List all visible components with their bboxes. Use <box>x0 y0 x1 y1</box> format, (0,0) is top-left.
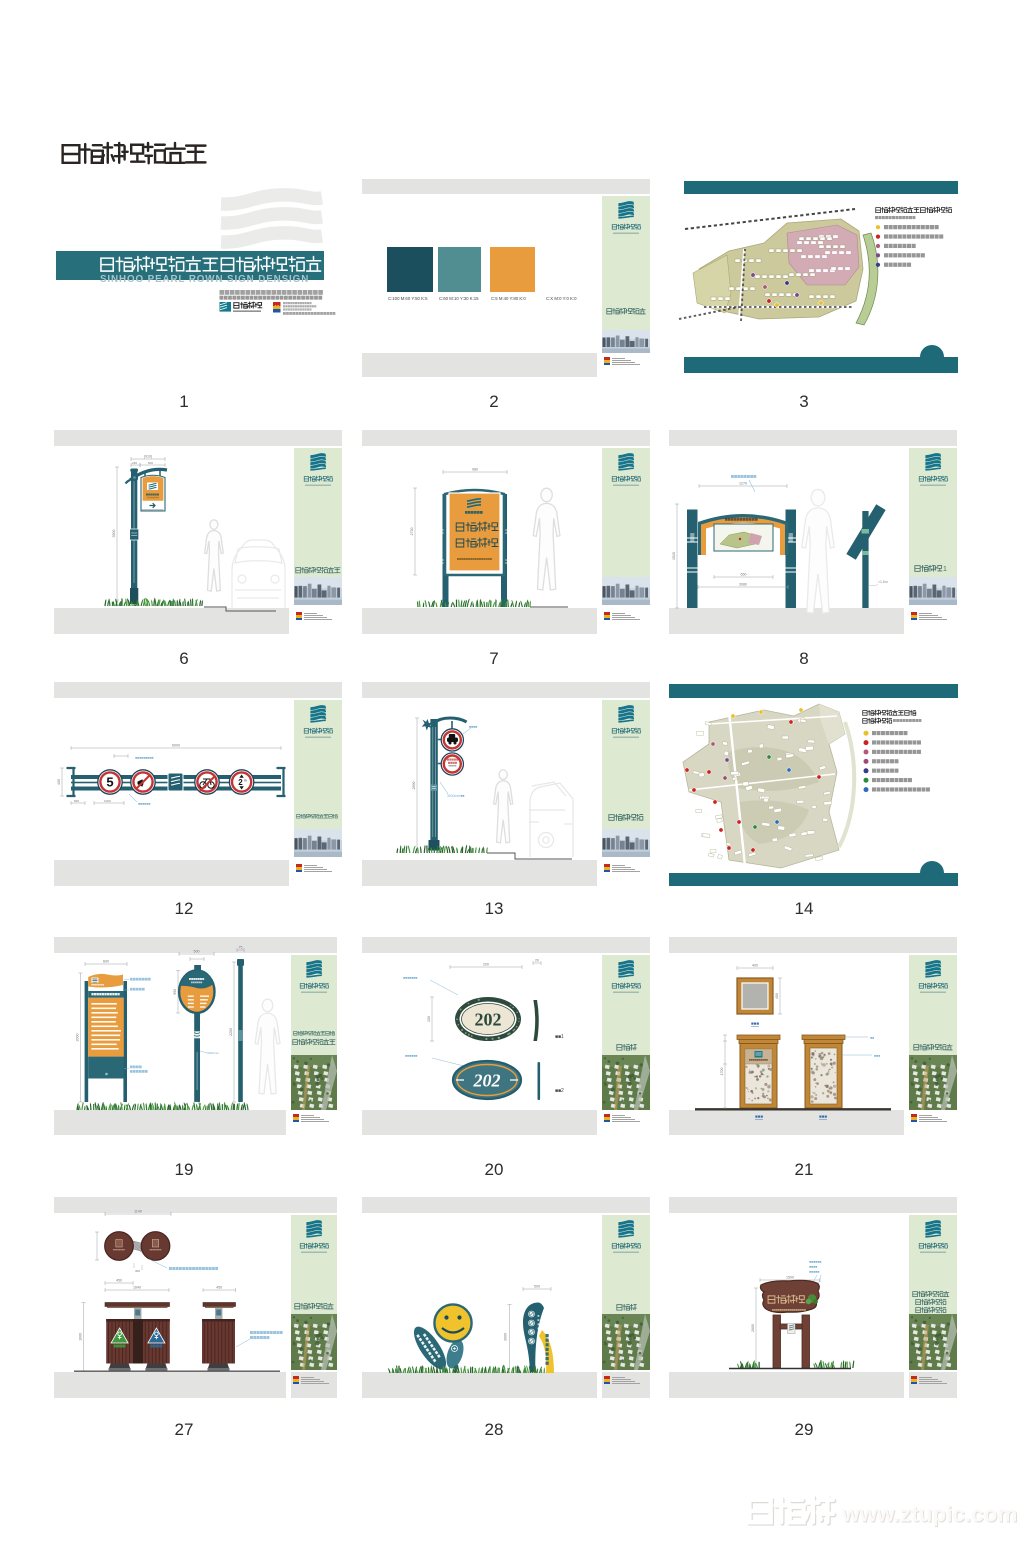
svg-text:C:X M:0 Y:0 K:0: C:X M:0 Y:0 K:0 <box>546 296 577 301</box>
svg-text:202: 202 <box>475 1010 502 1030</box>
svg-text:450: 450 <box>116 1279 122 1283</box>
svg-text:2600: 2600 <box>751 1324 755 1332</box>
svg-text:400: 400 <box>57 779 61 785</box>
svg-text:3000mm: 3000mm <box>207 1051 219 1055</box>
svg-text:500: 500 <box>74 799 79 803</box>
svg-text:600: 600 <box>103 960 109 964</box>
svg-text:650: 650 <box>741 573 747 577</box>
svg-text:■■■: ■■■ <box>819 1114 827 1119</box>
svg-text:500: 500 <box>148 461 153 465</box>
svg-text:1000: 1000 <box>79 1333 83 1341</box>
svg-text:6000: 6000 <box>172 744 180 748</box>
svg-text:300: 300 <box>135 1269 140 1273</box>
svg-text:C:100 M:60 Y:50 K:5: C:100 M:60 Y:50 K:5 <box>388 296 428 301</box>
svg-text:950: 950 <box>173 989 177 995</box>
svg-text:2: 2 <box>238 778 243 787</box>
svg-text:1520: 1520 <box>672 552 676 560</box>
svg-text:SINHOO PEARL ROWN SIGN DENSIGN: SINHOO PEARL ROWN SIGN DENSIGN <box>100 274 309 285</box>
svg-text:■■■■■■■: ■■■■■■■ <box>403 976 417 980</box>
svg-text:400: 400 <box>752 964 758 968</box>
svg-text:1000: 1000 <box>104 799 111 803</box>
svg-text:2200: 2200 <box>229 1028 233 1036</box>
svg-text:3500: 3500 <box>112 530 116 538</box>
svg-text:100: 100 <box>427 1016 431 1022</box>
svg-text:■■■■: ■■■■ <box>469 725 477 729</box>
svg-text:1: 1 <box>943 566 947 573</box>
svg-text:75: 75 <box>239 946 243 950</box>
svg-text:500: 500 <box>534 1285 540 1289</box>
svg-text:■■■■■: ■■■■■ <box>809 1270 819 1274</box>
svg-text:■■2: ■■2 <box>555 1088 564 1094</box>
svg-text:1270: 1270 <box>739 482 747 486</box>
svg-text:2730: 2730 <box>410 528 414 536</box>
svg-text:1700: 1700 <box>720 1068 724 1076</box>
svg-text:3080: 3080 <box>739 583 747 587</box>
svg-text:■■■: ■■■ <box>755 1114 763 1119</box>
svg-text:2890: 2890 <box>412 782 416 790</box>
svg-text:400: 400 <box>775 993 779 999</box>
svg-text:■■■■: ■■■■ <box>809 1265 817 1269</box>
svg-text:www.ztupic.com: www.ztupic.com <box>841 1502 1017 1527</box>
svg-text:■■■■■■: ■■■■■■ <box>138 802 150 806</box>
svg-text:C:5 M:40 Y:80 K:0: C:5 M:40 Y:80 K:0 <box>491 296 526 301</box>
svg-text:■■■■■■: ■■■■■■ <box>405 1054 417 1058</box>
svg-text:5: 5 <box>106 775 113 790</box>
svg-text:■■1: ■■1 <box>555 1034 564 1040</box>
svg-text:<1.5m: <1.5m <box>878 580 888 584</box>
svg-text:■■■: ■■■ <box>751 1021 759 1026</box>
svg-text:■■■: ■■■ <box>874 1054 880 1058</box>
svg-text:■■: ■■ <box>870 1036 874 1040</box>
svg-text:C:60 M:10 Y:30 K:15: C:60 M:10 Y:30 K:15 <box>439 296 479 301</box>
svg-text:1500: 1500 <box>786 1276 794 1280</box>
svg-text:3000: 3000 <box>504 1333 508 1341</box>
svg-text:202: 202 <box>473 1071 501 1091</box>
svg-text:200: 200 <box>483 963 489 967</box>
svg-text:450: 450 <box>216 1286 222 1290</box>
svg-text:3000mm■■: 3000mm■■ <box>447 794 464 798</box>
svg-text:■■■■■■: ■■■■■■ <box>809 1260 821 1264</box>
svg-text:20: 20 <box>535 959 539 963</box>
svg-text:1640: 1640 <box>133 1286 141 1290</box>
svg-text:500: 500 <box>194 950 200 954</box>
svg-text:2000: 2000 <box>76 1034 80 1042</box>
svg-text:230: 230 <box>132 461 137 465</box>
svg-text:1140: 1140 <box>134 1210 142 1214</box>
svg-text:m: m <box>244 779 247 783</box>
svg-text:■■■■■■■■■: ■■■■■■■■■ <box>135 756 153 760</box>
svg-text:(910): (910) <box>144 455 152 459</box>
svg-text:980: 980 <box>472 468 478 472</box>
